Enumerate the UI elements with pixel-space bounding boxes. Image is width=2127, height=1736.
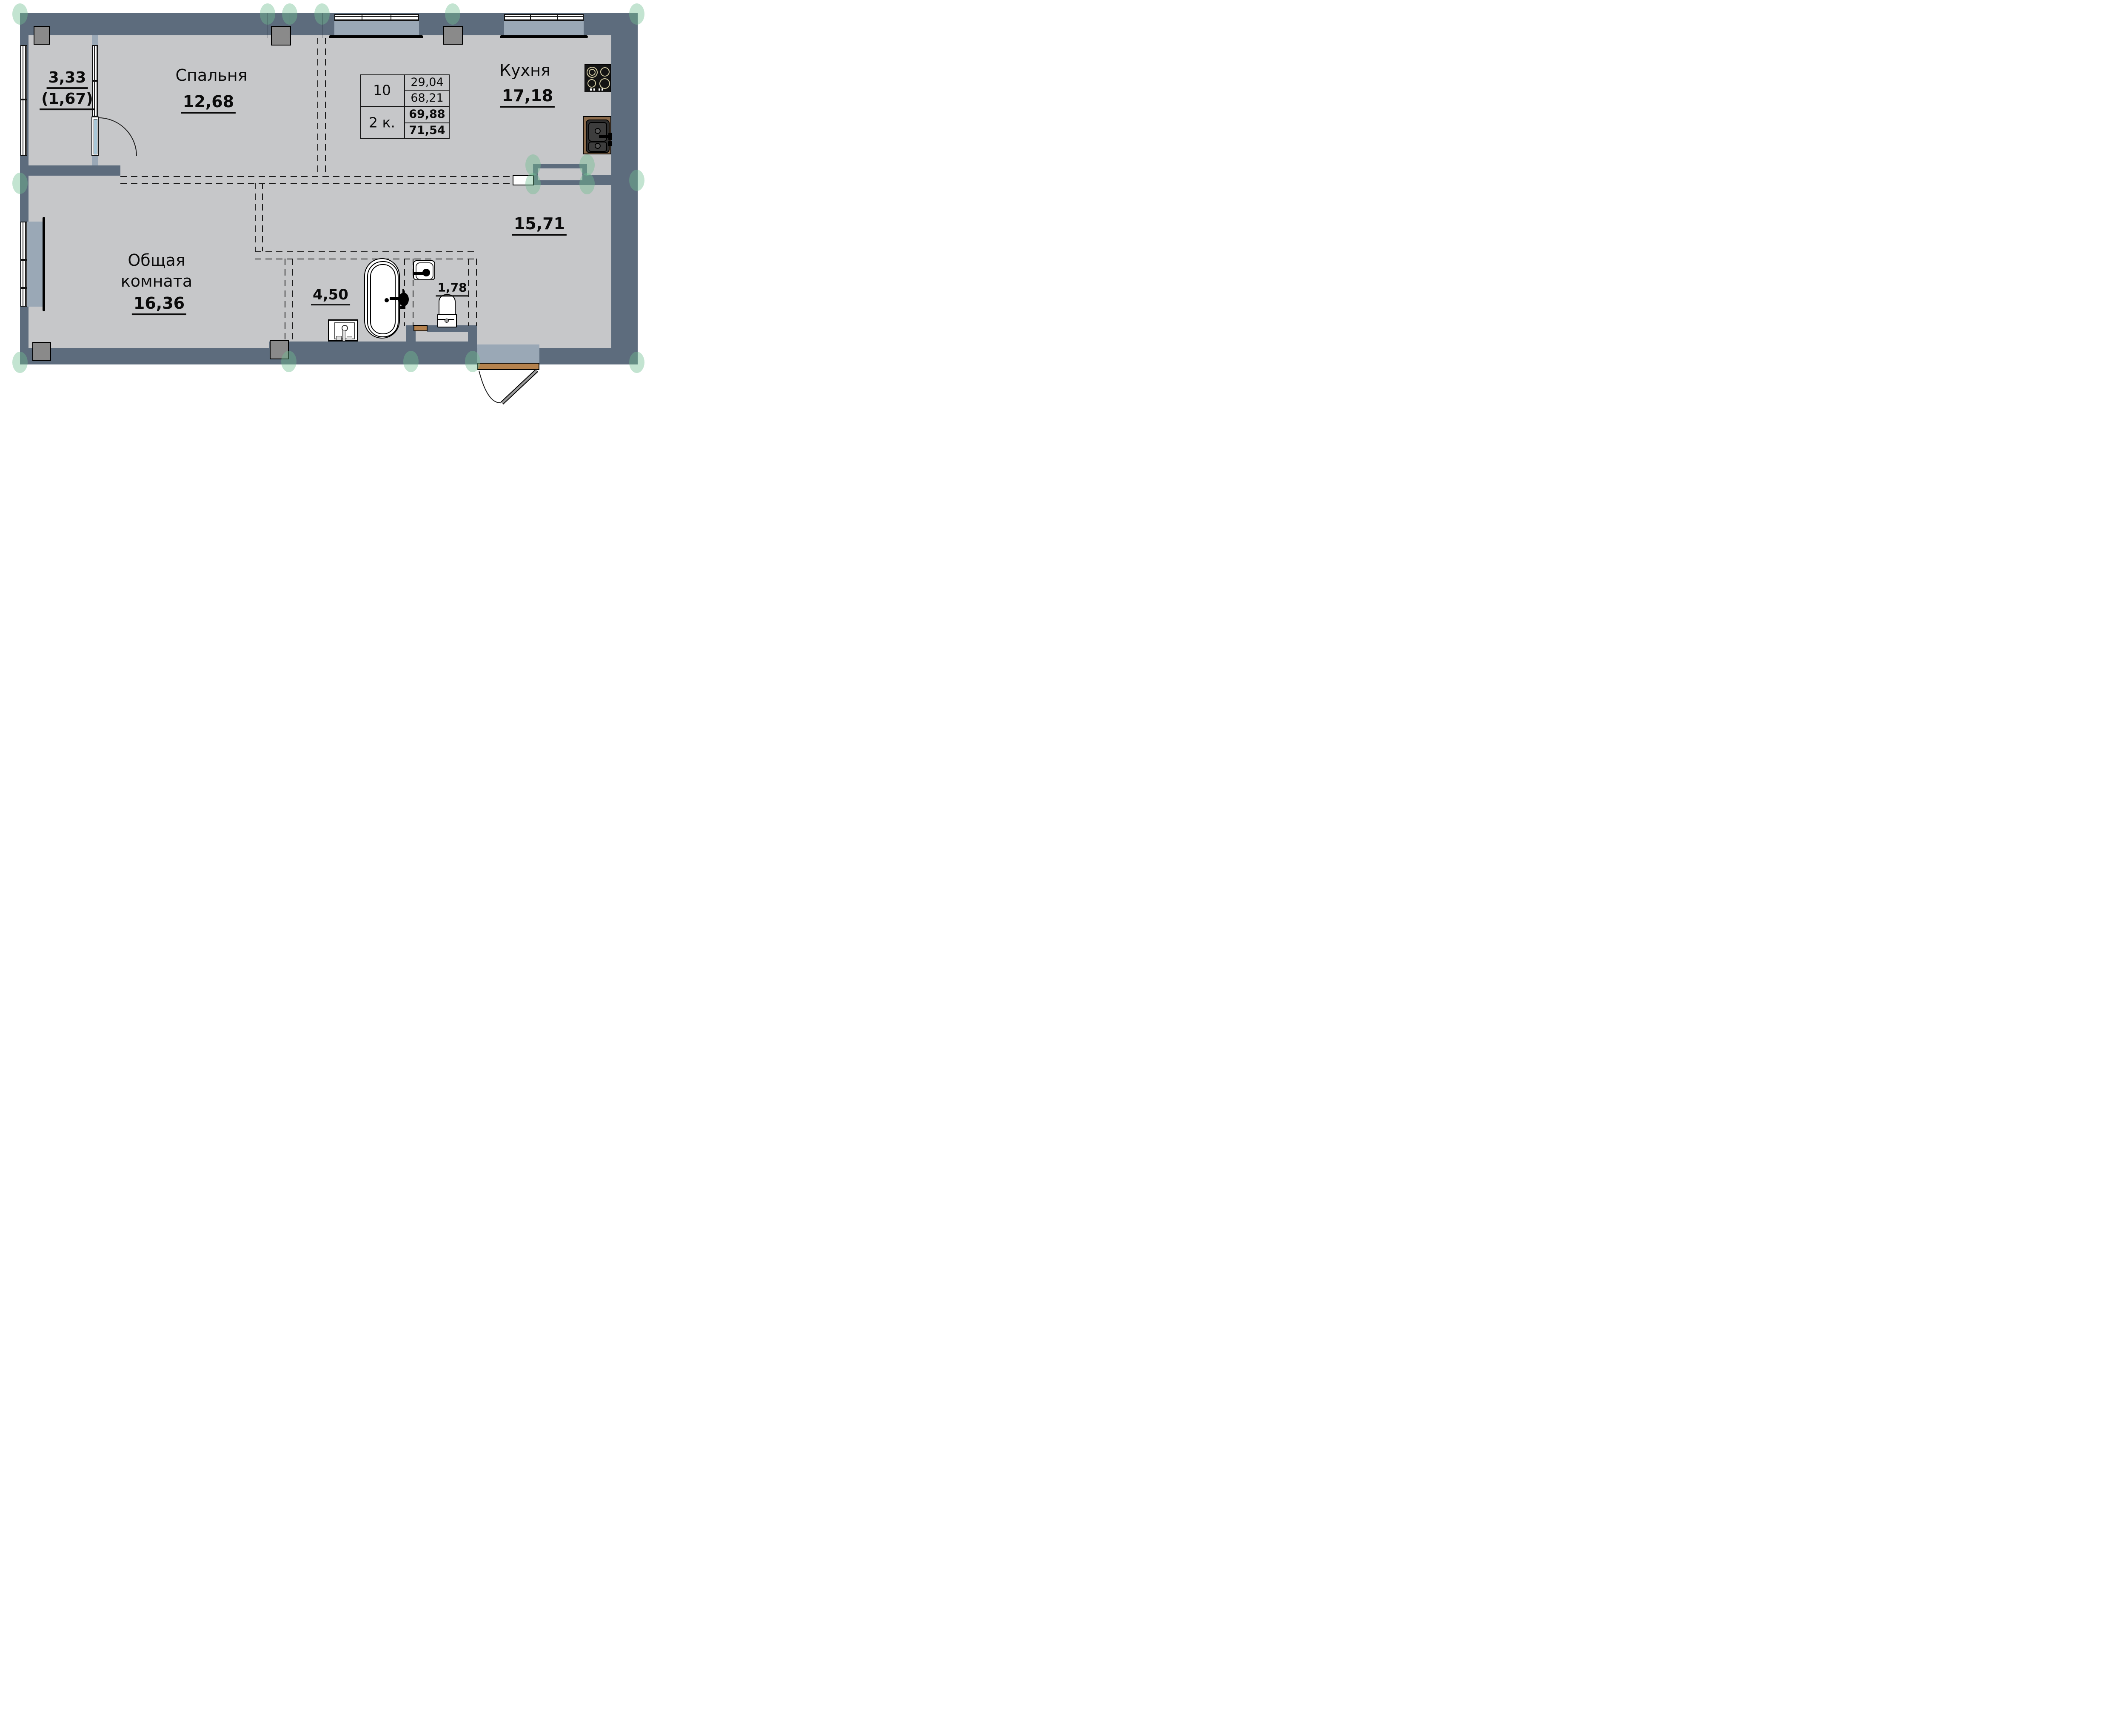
toilet-icon xyxy=(437,294,455,327)
axis-marker xyxy=(403,351,419,372)
wc-right-dash-2 xyxy=(476,259,477,326)
bedroom-kitchen-dash-1 xyxy=(317,38,318,176)
kitchen-window-left-mullions xyxy=(362,14,362,21)
kitchen-window-right-icon xyxy=(504,14,584,21)
kitchen-name-label: Кухня xyxy=(499,62,550,79)
entrance-door-sill xyxy=(477,363,539,370)
living-hall-dash-2 xyxy=(262,183,263,251)
kitchen-window-right-mullions2 xyxy=(557,14,558,21)
column-top-mid xyxy=(271,26,291,46)
living-area-value: 29,04 xyxy=(411,77,443,88)
living-window-bay xyxy=(27,222,43,307)
bedroom-bottom-dash-2 xyxy=(120,183,513,184)
axis-marker xyxy=(12,173,28,194)
kitchen-window-right-mullions xyxy=(530,14,531,21)
living-window-sill xyxy=(43,217,45,311)
axis-marker xyxy=(445,3,460,25)
total-area-value: 69,88 xyxy=(409,108,445,120)
unit-info-table: 10 2 к. 29,04 68,21 69,88 71,54 xyxy=(360,74,450,139)
balcony-partition-pier-bottom xyxy=(92,156,98,165)
bath-left-dash-1 xyxy=(285,259,285,342)
wc-door-sill xyxy=(413,325,428,331)
balcony-bottom-wall xyxy=(20,165,120,176)
balcony-window-upper-icon xyxy=(20,45,27,100)
bathroom-area-label: 4,50 xyxy=(311,287,350,303)
bedroom-bottom-dash-1 xyxy=(120,176,513,177)
axis-marker xyxy=(579,154,595,176)
balcony-window-lower-icon xyxy=(20,100,27,156)
area-without-balcony-value: 68,21 xyxy=(411,92,443,104)
unit-type: 2 к. xyxy=(369,116,395,131)
kitchen-window-left-bay xyxy=(334,21,419,35)
axis-marker xyxy=(525,173,541,194)
wall-bottom-right-segment xyxy=(539,348,638,364)
kitchen-area-label: 17,18 xyxy=(500,88,555,105)
wc-right-stub xyxy=(468,325,477,342)
axis-marker xyxy=(579,173,595,194)
bath-left-dash-2 xyxy=(292,259,293,342)
living-window-seg2-icon xyxy=(20,260,27,288)
column-top-left xyxy=(34,26,50,45)
bathtub-faucet-icon xyxy=(385,289,411,310)
balcony-partition-pier-top xyxy=(92,35,98,45)
bath-bottom-wall xyxy=(269,342,477,348)
entrance-recess xyxy=(477,344,539,363)
balcony-door-icon xyxy=(91,117,99,156)
balcony-partition-window-icon xyxy=(92,45,98,81)
bedroom-kitchen-dash-2 xyxy=(325,38,326,176)
kitchen-window-left-icon xyxy=(334,14,419,21)
axis-marker xyxy=(629,3,644,25)
vanity-washbasin-icon xyxy=(328,319,358,342)
column-top-kitchen xyxy=(443,26,463,45)
vent-shaft-hollow xyxy=(538,168,582,180)
axis-marker xyxy=(465,351,480,372)
hallway-area-label: 15,71 xyxy=(512,216,567,233)
stove-icon xyxy=(584,64,611,92)
column-bottom-left xyxy=(32,342,51,361)
living-name-line1-label: Общая xyxy=(128,252,185,269)
living-hall-dash-1 xyxy=(255,183,256,251)
balcony-area-label: 3,33 xyxy=(47,70,88,86)
wc-area-label: 1,78 xyxy=(436,281,468,293)
kitchen-window-left-sill xyxy=(329,35,423,38)
bedroom-name-label: Спальня xyxy=(175,67,247,84)
unit-number: 10 xyxy=(373,83,391,98)
axis-line xyxy=(290,13,290,38)
kitchen-window-right-sill xyxy=(500,35,588,38)
axis-marker xyxy=(12,352,28,373)
axis-marker xyxy=(525,154,541,176)
axis-line xyxy=(268,13,268,38)
bedroom-area-label: 12,68 xyxy=(181,94,236,111)
living-window-seg1-icon xyxy=(20,222,27,260)
axis-marker xyxy=(12,3,28,25)
total-area-with-balcony-value: 71,54 xyxy=(409,125,445,137)
floor-plan: 10 2 к. 29,04 68,21 69,88 71,54 3,33 (1,… xyxy=(0,0,657,405)
axis-line xyxy=(322,13,322,38)
axis-marker xyxy=(281,351,297,372)
living-name-line2-label: комната xyxy=(121,273,192,290)
hall-bath-dash-2 xyxy=(255,259,477,259)
wc-washbasin-icon xyxy=(413,260,435,280)
living-area-label: 16,36 xyxy=(132,295,186,312)
kitchen-sink-icon xyxy=(583,116,611,154)
living-window-seg3-icon xyxy=(20,288,27,307)
hall-bath-dash-1 xyxy=(255,251,477,252)
axis-marker xyxy=(629,352,644,373)
axis-marker xyxy=(629,170,644,191)
balcony-area-coeff-label: (1,67) xyxy=(40,91,95,107)
kitchen-window-right-bay xyxy=(504,21,584,35)
kitchen-window-left-mullions2 xyxy=(391,14,391,21)
